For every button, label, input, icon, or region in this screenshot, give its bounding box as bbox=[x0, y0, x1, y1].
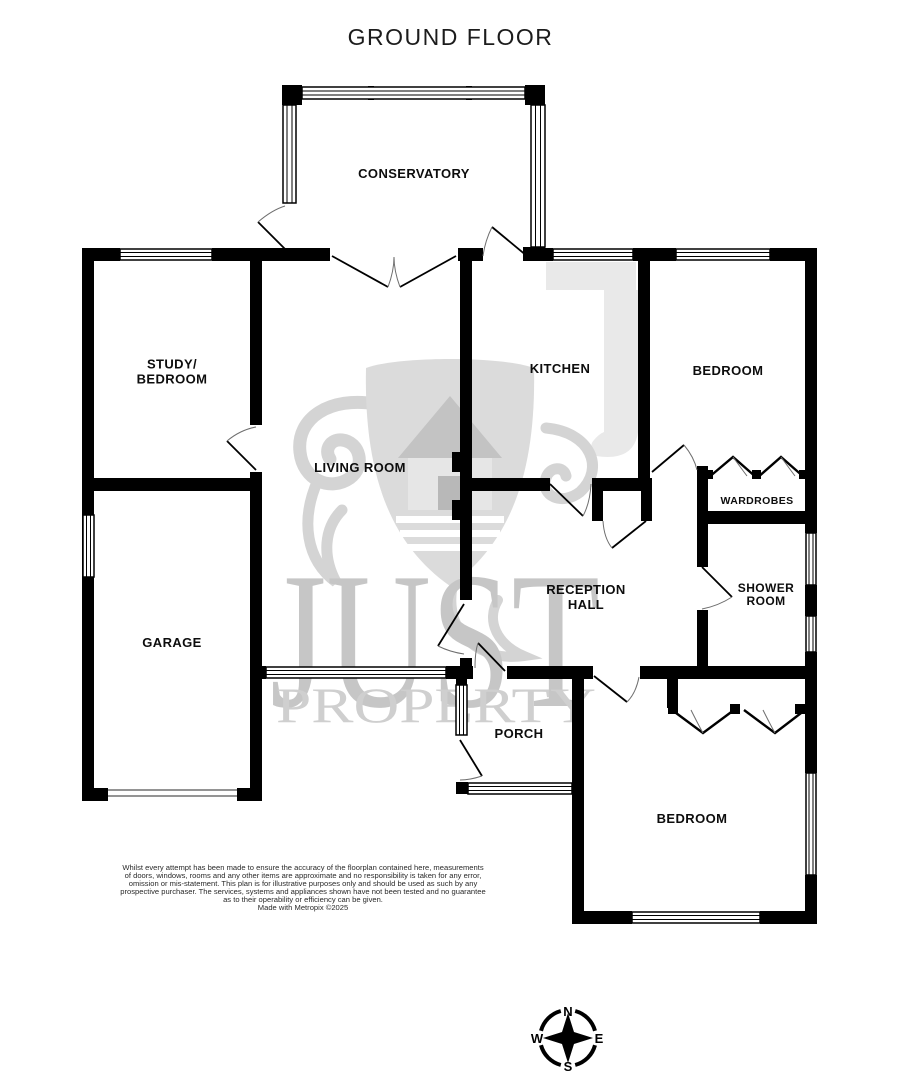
door bbox=[652, 445, 697, 472]
room-label-bedroom-top: BEDROOM bbox=[693, 364, 764, 379]
window bbox=[632, 912, 760, 923]
door bbox=[483, 227, 527, 256]
window bbox=[266, 667, 446, 678]
window bbox=[120, 249, 212, 260]
room-label-conservatory: CONSERVATORY bbox=[358, 167, 470, 182]
room-label-line: HALL bbox=[546, 597, 625, 612]
door bbox=[702, 567, 732, 609]
room-label-shower-room: SHOWER ROOM bbox=[738, 582, 794, 608]
room-label-reception-hall: RECEPTION HALL bbox=[546, 582, 625, 612]
room-label-line: BEDROOM bbox=[137, 372, 208, 387]
compass-rose: N E S W bbox=[531, 1004, 604, 1074]
door bbox=[603, 521, 646, 548]
room-label-kitchen: KITCHEN bbox=[530, 362, 591, 377]
window bbox=[283, 105, 296, 203]
window bbox=[531, 105, 545, 247]
door bbox=[594, 676, 639, 702]
window bbox=[553, 249, 633, 260]
compass-ring bbox=[575, 1011, 595, 1031]
compass-south-label: S bbox=[564, 1059, 573, 1074]
room-label-line: STUDY/ bbox=[137, 358, 208, 373]
compass-ring bbox=[541, 1045, 561, 1065]
door bbox=[394, 256, 456, 287]
compass-ring bbox=[541, 1011, 561, 1031]
door bbox=[227, 427, 256, 470]
watermark-text-bottom: PROPERTY bbox=[276, 677, 596, 733]
disclaimer-credit: Made with Metropix ©2025 bbox=[113, 904, 493, 912]
window bbox=[468, 783, 572, 794]
room-label-garage: GARAGE bbox=[142, 636, 201, 651]
door bbox=[332, 256, 394, 287]
window bbox=[806, 773, 816, 875]
room-label-wardrobes: WARDROBES bbox=[720, 495, 793, 507]
window bbox=[83, 515, 94, 577]
flourish-swirl-icon bbox=[545, 428, 593, 499]
room-label-bedroom-bottom: BEDROOM bbox=[657, 812, 728, 827]
room-label-line: ROOM bbox=[738, 595, 794, 608]
disclaimer-text: Whilst every attempt has been made to en… bbox=[113, 864, 493, 912]
window bbox=[456, 685, 467, 735]
window bbox=[302, 87, 525, 99]
compass-ring bbox=[575, 1045, 595, 1065]
room-label-living-room: LIVING ROOM bbox=[314, 461, 406, 476]
compass-north-label: N bbox=[563, 1004, 572, 1019]
garage-door bbox=[108, 790, 237, 796]
room-label-study-bedroom: STUDY/ BEDROOM bbox=[137, 358, 208, 387]
window bbox=[676, 249, 770, 260]
floorplan-page: GROUND FLOOR bbox=[0, 0, 901, 1080]
compass-east-label: E bbox=[595, 1031, 604, 1046]
compass-west-label: W bbox=[531, 1031, 544, 1046]
window bbox=[806, 616, 816, 652]
window bbox=[806, 533, 816, 585]
door bbox=[258, 206, 288, 252]
compass-star-icon bbox=[543, 1013, 593, 1063]
room-label-line: RECEPTION bbox=[546, 582, 625, 597]
room-label-porch: PORCH bbox=[495, 727, 544, 742]
floorplan-drawing: JUST PROPERTY bbox=[0, 0, 901, 1080]
